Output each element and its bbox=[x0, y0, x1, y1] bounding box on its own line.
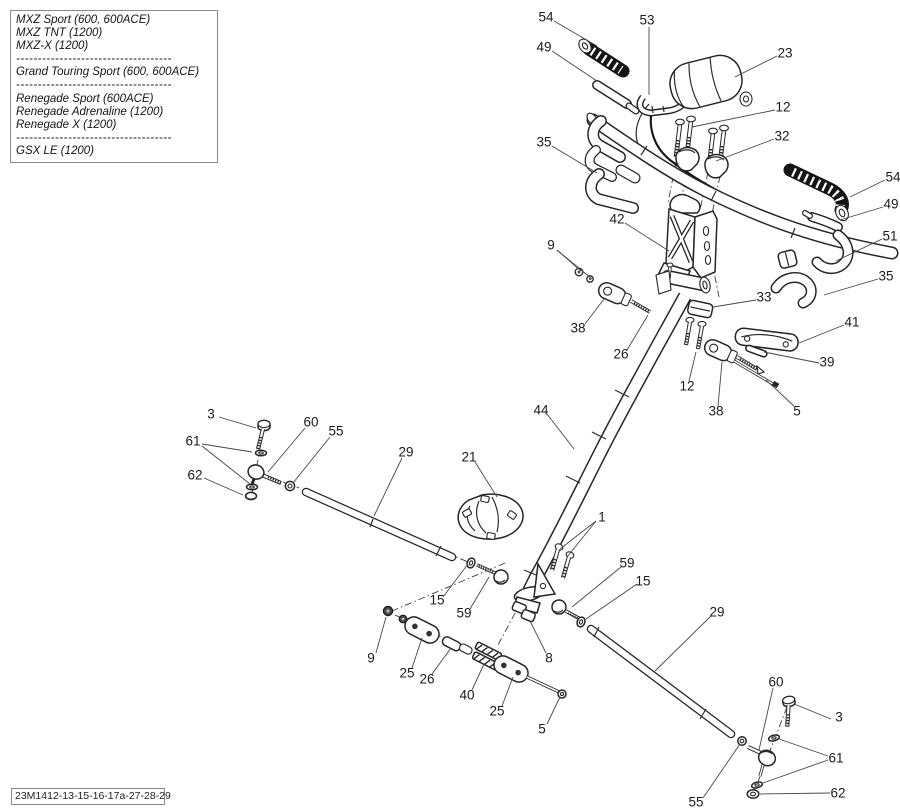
callout-44: 44 bbox=[533, 403, 549, 418]
clip-62-left bbox=[246, 492, 257, 499]
leader-line bbox=[412, 638, 422, 668]
jam-nut-right bbox=[738, 737, 746, 745]
bolt-left bbox=[258, 420, 270, 449]
callout-51: 51 bbox=[882, 229, 897, 244]
leader-line bbox=[692, 110, 775, 127]
callout-25: 25 bbox=[489, 704, 504, 719]
callout-53: 53 bbox=[639, 13, 654, 28]
callout-8: 8 bbox=[545, 651, 553, 666]
leader-line bbox=[268, 428, 305, 472]
bolt-right bbox=[782, 695, 799, 726]
callout-26: 26 bbox=[613, 347, 628, 362]
callout-41: 41 bbox=[844, 315, 859, 330]
leader-line bbox=[585, 299, 604, 324]
callout-35: 35 bbox=[536, 135, 551, 150]
ball-stud-right bbox=[552, 600, 580, 619]
washer-15-left bbox=[466, 557, 477, 569]
callout-layer: 5453492312323554495135429333826413912385… bbox=[185, 10, 900, 808]
callout-9: 9 bbox=[547, 238, 555, 253]
part-number: 23M1412-13-15-16-17a-27-28-29 bbox=[15, 790, 171, 802]
leader-line bbox=[475, 462, 497, 497]
steering-clamp bbox=[687, 300, 713, 319]
steering-stop-lever bbox=[734, 361, 778, 386]
callout-49: 49 bbox=[536, 40, 551, 55]
lock-nut-center bbox=[578, 271, 581, 274]
tie-rod-end-left bbox=[246, 463, 281, 484]
ball-stud-left bbox=[477, 565, 508, 584]
ball-joint-left bbox=[596, 280, 650, 312]
callout-9: 9 bbox=[367, 651, 375, 666]
callout-32: 32 bbox=[774, 129, 789, 144]
washer-61-left-lower bbox=[247, 484, 258, 490]
leader-line bbox=[766, 380, 794, 406]
callout-29: 29 bbox=[709, 605, 724, 620]
leader-line bbox=[713, 300, 756, 307]
callout-25: 25 bbox=[399, 666, 414, 681]
steering-column bbox=[513, 296, 685, 613]
washer-61-right-lower bbox=[751, 781, 763, 789]
callout-33: 33 bbox=[756, 290, 771, 305]
leader-line bbox=[794, 704, 831, 719]
callout-3: 3 bbox=[835, 710, 843, 725]
steering-stop-plate bbox=[734, 327, 799, 352]
leader-line bbox=[567, 521, 596, 557]
leader-line bbox=[850, 180, 885, 197]
leader-line bbox=[530, 621, 546, 653]
leader-line bbox=[779, 739, 828, 756]
leader-line bbox=[655, 616, 711, 671]
callout-62: 62 bbox=[830, 786, 845, 801]
leader-line bbox=[625, 223, 669, 251]
callout-29: 29 bbox=[398, 445, 413, 460]
link-plate-25a bbox=[402, 614, 442, 646]
washer-61-right-upper bbox=[768, 734, 780, 742]
callout-60: 60 bbox=[768, 675, 783, 690]
callout-61: 61 bbox=[828, 751, 843, 766]
tie-rod-end-right bbox=[748, 747, 778, 776]
leader-line bbox=[219, 417, 256, 428]
callout-55: 55 bbox=[328, 424, 343, 439]
callout-61: 61 bbox=[185, 434, 200, 449]
tie-rod-right bbox=[591, 627, 731, 734]
washer-61-left-upper bbox=[256, 450, 267, 456]
callout-54: 54 bbox=[885, 170, 900, 185]
clamp-bolts-lower bbox=[686, 317, 706, 349]
handlebar bbox=[585, 111, 892, 253]
leader-line bbox=[376, 617, 386, 653]
leader-line bbox=[554, 21, 597, 46]
callout-3: 3 bbox=[207, 407, 215, 422]
callout-60: 60 bbox=[303, 415, 318, 430]
handlebar-hook-right bbox=[776, 277, 811, 303]
left-grip bbox=[576, 37, 623, 71]
handlebar-pad bbox=[666, 51, 752, 113]
column-bolts bbox=[552, 543, 575, 578]
riser-spacer-block bbox=[777, 249, 797, 269]
callout-42: 42 bbox=[609, 212, 624, 227]
callout-62: 62 bbox=[187, 468, 202, 483]
callout-26: 26 bbox=[419, 672, 434, 687]
leader-line bbox=[472, 664, 484, 690]
riser-block bbox=[659, 195, 717, 281]
bolt-5 bbox=[527, 677, 566, 698]
leader-line bbox=[718, 362, 722, 406]
exploded-steering-diagram: 5453492312323554495135429333826413912385… bbox=[0, 0, 900, 808]
callout-39: 39 bbox=[819, 355, 834, 370]
part-number-box: 23M1412-13-15-16-17a-27-28-29 bbox=[11, 788, 165, 805]
nut-62-right bbox=[747, 790, 759, 798]
callout-35: 35 bbox=[878, 269, 893, 284]
callout-15: 15 bbox=[429, 593, 444, 608]
callout-38: 38 bbox=[570, 321, 585, 336]
callout-5: 5 bbox=[793, 404, 801, 419]
leader-line bbox=[547, 414, 574, 449]
spacer-26 bbox=[441, 635, 462, 652]
callout-54: 54 bbox=[538, 10, 554, 25]
leader-line bbox=[735, 56, 777, 77]
callout-12: 12 bbox=[775, 100, 790, 115]
leader-line bbox=[204, 478, 243, 495]
callout-40: 40 bbox=[459, 688, 474, 703]
leader-line bbox=[374, 458, 402, 516]
leader-line bbox=[824, 279, 878, 295]
leader-line bbox=[557, 250, 592, 279]
callout-59: 59 bbox=[456, 606, 471, 621]
leader-line bbox=[760, 793, 830, 794]
leader-line bbox=[799, 325, 844, 343]
leader-line bbox=[572, 567, 621, 607]
left-lever bbox=[597, 85, 636, 111]
callout-23: 23 bbox=[777, 46, 792, 61]
callout-38: 38 bbox=[708, 404, 723, 419]
leader-line bbox=[470, 577, 489, 609]
leader-line bbox=[703, 744, 740, 798]
parts-catalog-page: MXZ Sport (600, 600ACE)MXZ TNT (1200)MXZ… bbox=[0, 0, 900, 808]
callout-55: 55 bbox=[688, 795, 703, 808]
leader-line bbox=[764, 352, 819, 363]
link-plate-25b bbox=[491, 653, 531, 685]
tie-rod-left bbox=[306, 492, 452, 557]
callout-1: 1 bbox=[598, 510, 606, 525]
leader-line bbox=[202, 444, 252, 452]
callout-59: 59 bbox=[619, 556, 634, 571]
leader-line bbox=[689, 352, 696, 381]
leader-line bbox=[202, 446, 250, 484]
leader-line bbox=[502, 677, 513, 706]
leader-line bbox=[547, 697, 560, 724]
callout-12: 12 bbox=[679, 379, 694, 394]
callout-49: 49 bbox=[883, 197, 898, 212]
leader-line bbox=[432, 648, 451, 674]
steering-cover bbox=[458, 494, 523, 540]
spacer-26b bbox=[458, 643, 473, 656]
leader-line bbox=[293, 437, 330, 483]
callout-5: 5 bbox=[538, 722, 546, 737]
callout-21: 21 bbox=[461, 450, 476, 465]
leader-line bbox=[627, 315, 648, 350]
right-lever bbox=[805, 213, 838, 227]
callout-15: 15 bbox=[635, 574, 650, 589]
